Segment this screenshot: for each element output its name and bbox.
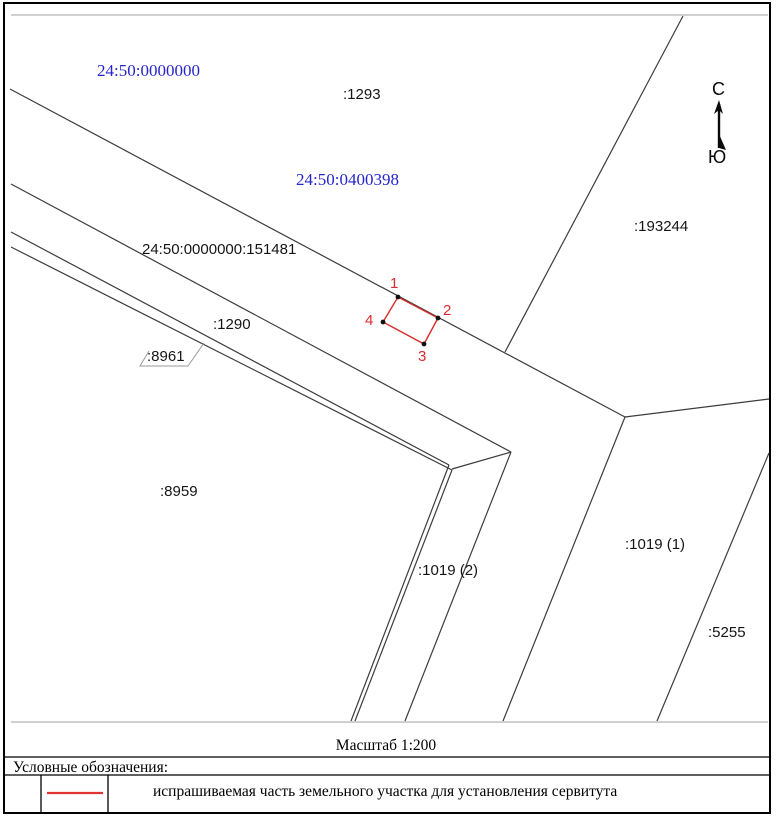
vertex-label-3: 3: [418, 349, 426, 366]
boundary-193244: [505, 16, 683, 352]
parcel-label-8959: :8959: [160, 484, 198, 501]
boundary-8961-down-left: [351, 465, 449, 721]
boundary-1019-1-top: [625, 399, 769, 417]
vertex-label-1: 1: [390, 276, 398, 293]
vertex-dot-3: [422, 342, 427, 347]
vertex-dot-4: [381, 320, 386, 325]
legend-item-label: испрашиваемая часть земельного участка д…: [153, 783, 617, 800]
cadastral-plan-page: 24:50:0000000 24:50:0400398 :1293 :19324…: [0, 0, 777, 820]
parcel-label-8961: :8961: [147, 349, 185, 366]
vertex-dot-1: [396, 295, 401, 300]
north-arrow-icon: [714, 100, 726, 150]
boundary-8961-down-right: [355, 470, 452, 721]
scale-caption: Масштаб 1:200: [336, 737, 436, 754]
boundary-main-diagonal: [10, 89, 625, 417]
compass-north-label: С: [712, 80, 725, 100]
map-drawing: [0, 0, 777, 820]
vertex-label-2: 2: [443, 303, 451, 320]
boundary-1019-1-left: [503, 417, 625, 721]
boundary-8961-lower: [11, 247, 452, 470]
parcel-label-193244: :193244: [634, 219, 688, 236]
parcel-label-1290: :1290: [213, 317, 251, 334]
servitude-outline: [383, 297, 438, 344]
parcel-label-1019-1: :1019 (1): [625, 537, 685, 554]
legend-title: Условные обозначения:: [13, 759, 168, 776]
compass-south-label: Ю: [708, 148, 726, 168]
parcel-label-151481: 24:50:0000000:151481: [142, 242, 296, 259]
quarter-label-0400398: 24:50:0400398: [296, 171, 399, 190]
boundary-8961-upper: [11, 232, 449, 465]
vertex-label-4: 4: [365, 313, 373, 330]
boundary-1019-2-right: [405, 452, 511, 721]
vertex-dot-2: [436, 316, 441, 321]
parcel-label-1293: :1293: [343, 87, 381, 104]
parcel-label-1019-2: :1019 (2): [418, 563, 478, 580]
boundary-corner-ridge: [452, 452, 511, 469]
parcel-boundaries: [10, 16, 769, 721]
boundary-5255: [657, 453, 769, 721]
quarter-label-main: 24:50:0000000: [97, 62, 200, 81]
parcel-label-5255: :5255: [708, 625, 746, 642]
scale-caption-row: Масштаб 1:200: [5, 737, 767, 755]
